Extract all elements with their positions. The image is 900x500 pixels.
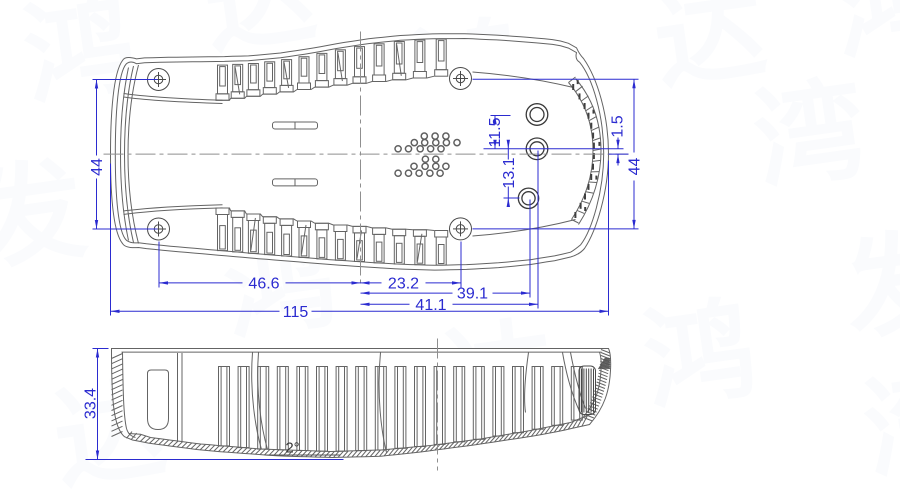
svg-text:33.4: 33.4	[83, 388, 100, 419]
svg-text:湾: 湾	[857, 357, 900, 494]
svg-text:41.1: 41.1	[415, 297, 446, 314]
svg-text:23.2: 23.2	[388, 275, 419, 292]
svg-text:发: 发	[0, 147, 93, 284]
svg-text:发: 发	[837, 217, 900, 354]
svg-text:湾: 湾	[747, 67, 873, 204]
svg-text:鸿: 鸿	[827, 0, 900, 74]
svg-text:2°: 2°	[285, 440, 299, 457]
svg-text:44: 44	[627, 158, 644, 176]
svg-text:11.5: 11.5	[487, 117, 504, 147]
svg-text:115: 115	[283, 304, 309, 321]
svg-text:39.1: 39.1	[457, 286, 488, 303]
svg-text:44: 44	[89, 158, 106, 176]
svg-text:46.6: 46.6	[248, 275, 279, 292]
svg-text:13.1: 13.1	[501, 157, 518, 188]
svg-text:1.5: 1.5	[610, 115, 627, 137]
svg-text:鸿: 鸿	[637, 287, 763, 424]
